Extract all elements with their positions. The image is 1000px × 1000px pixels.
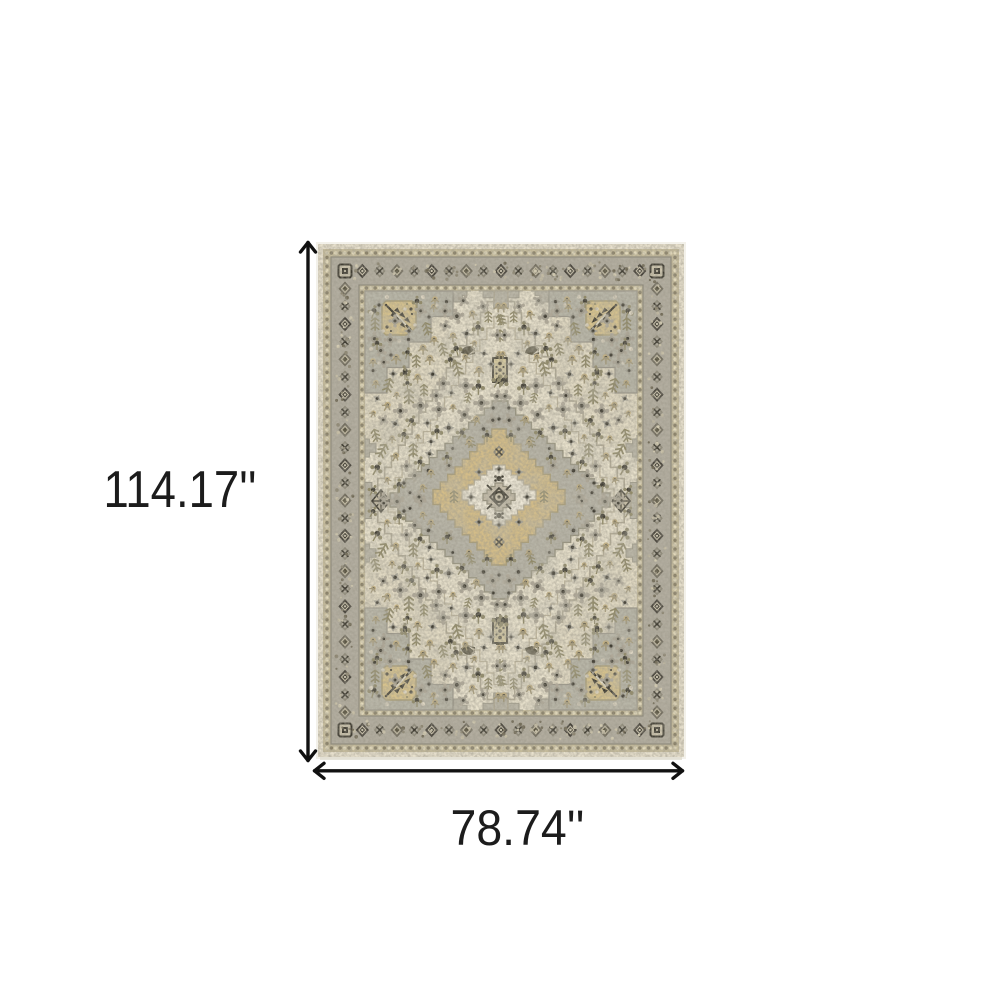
svg-text:78.74'': 78.74'' xyxy=(451,800,585,856)
svg-text:114.17'': 114.17'' xyxy=(104,461,257,519)
